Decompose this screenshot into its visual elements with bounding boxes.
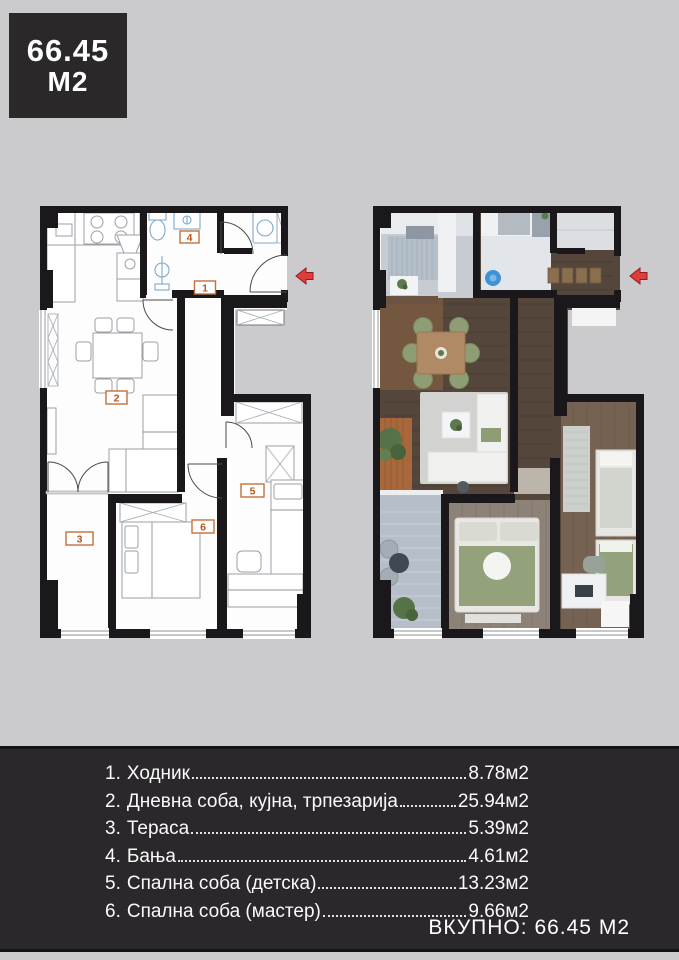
legend-row-leader [178,860,466,862]
legend-row: 1. Ходник 8.78м2 [105,763,529,791]
kids-bedroom-render [561,402,637,629]
legend-row: 2. Дневна соба, кујна, трпезарија 25.94м… [105,791,529,819]
room-legend-rows: 1. Ходник 8.78м2 2. Дневна соба, кујна, … [105,763,529,929]
legend-row: 4. Бања 4.61м2 [105,846,529,874]
legend-row-value: 4.61м2 [468,846,529,868]
legend-row-number: 4. [105,846,121,868]
svg-text:2: 2 [114,393,120,405]
legend-row-name: Ходник [127,763,190,785]
legend-row-name: Бања [127,846,176,868]
legend-row: 5. Спална соба (детска) 13.23м2 [105,873,529,901]
room-label-3: 3 [66,532,93,546]
svg-text:6: 6 [200,522,206,534]
svg-text:1: 1 [202,283,208,295]
area-badge-unit: M2 [48,67,89,96]
floor-plan-3d [356,195,656,655]
svg-text:5: 5 [250,486,256,498]
entrance-arrow-icon [296,268,313,284]
legend-row-value: 25.94м2 [458,791,529,813]
legend-row-number: 2. [105,791,121,813]
svg-text:3: 3 [77,534,83,546]
master-bedroom-render [448,500,551,629]
legend-row-name: Спална соба (мастер) [127,901,321,923]
room-label-5: 5 [241,484,264,498]
room-label-2: 2 [106,391,127,405]
svg-text:4: 4 [187,232,193,244]
legend-row-value: 5.39м2 [468,818,529,840]
legend-row-leader [191,832,466,834]
shaft-box [237,310,284,325]
legend-row-number: 6. [105,901,121,923]
room-label-6: 6 [192,520,214,534]
room-legend-panel: 1. Ходник 8.78м2 2. Дневна соба, кујна, … [0,746,679,952]
floor-plan-2d: 1 2 3 4 5 6 [24,195,324,655]
legend-row-number: 3. [105,818,121,840]
total-area-label: ВКУПНО: 66.45 М2 [428,916,630,940]
legend-row-value: 13.23м2 [458,873,529,895]
flyer-page: 66.45 M2 [0,0,679,960]
legend-row-number: 1. [105,763,121,785]
legend-row-leader [400,805,456,807]
legend-row: 3. Тераса 5.39м2 [105,818,529,846]
bathroom-render [481,210,551,292]
legend-row-name: Дневна соба, кујна, трпезарија [127,791,398,813]
legend-row-leader [192,777,466,779]
legend-row-name: Тераса [127,818,189,840]
legend-row-number: 5. [105,873,121,895]
legend-row-value: 8.78м2 [468,763,529,785]
room-label-1: 1 [195,281,216,295]
room-label-4: 4 [180,231,199,244]
area-badge: 66.45 M2 [9,13,127,118]
area-badge-value: 66.45 [27,35,110,68]
legend-row-name: Спална соба (детска) [127,873,317,895]
legend-row-leader [318,887,455,889]
entrance-arrow-icon [630,268,647,284]
